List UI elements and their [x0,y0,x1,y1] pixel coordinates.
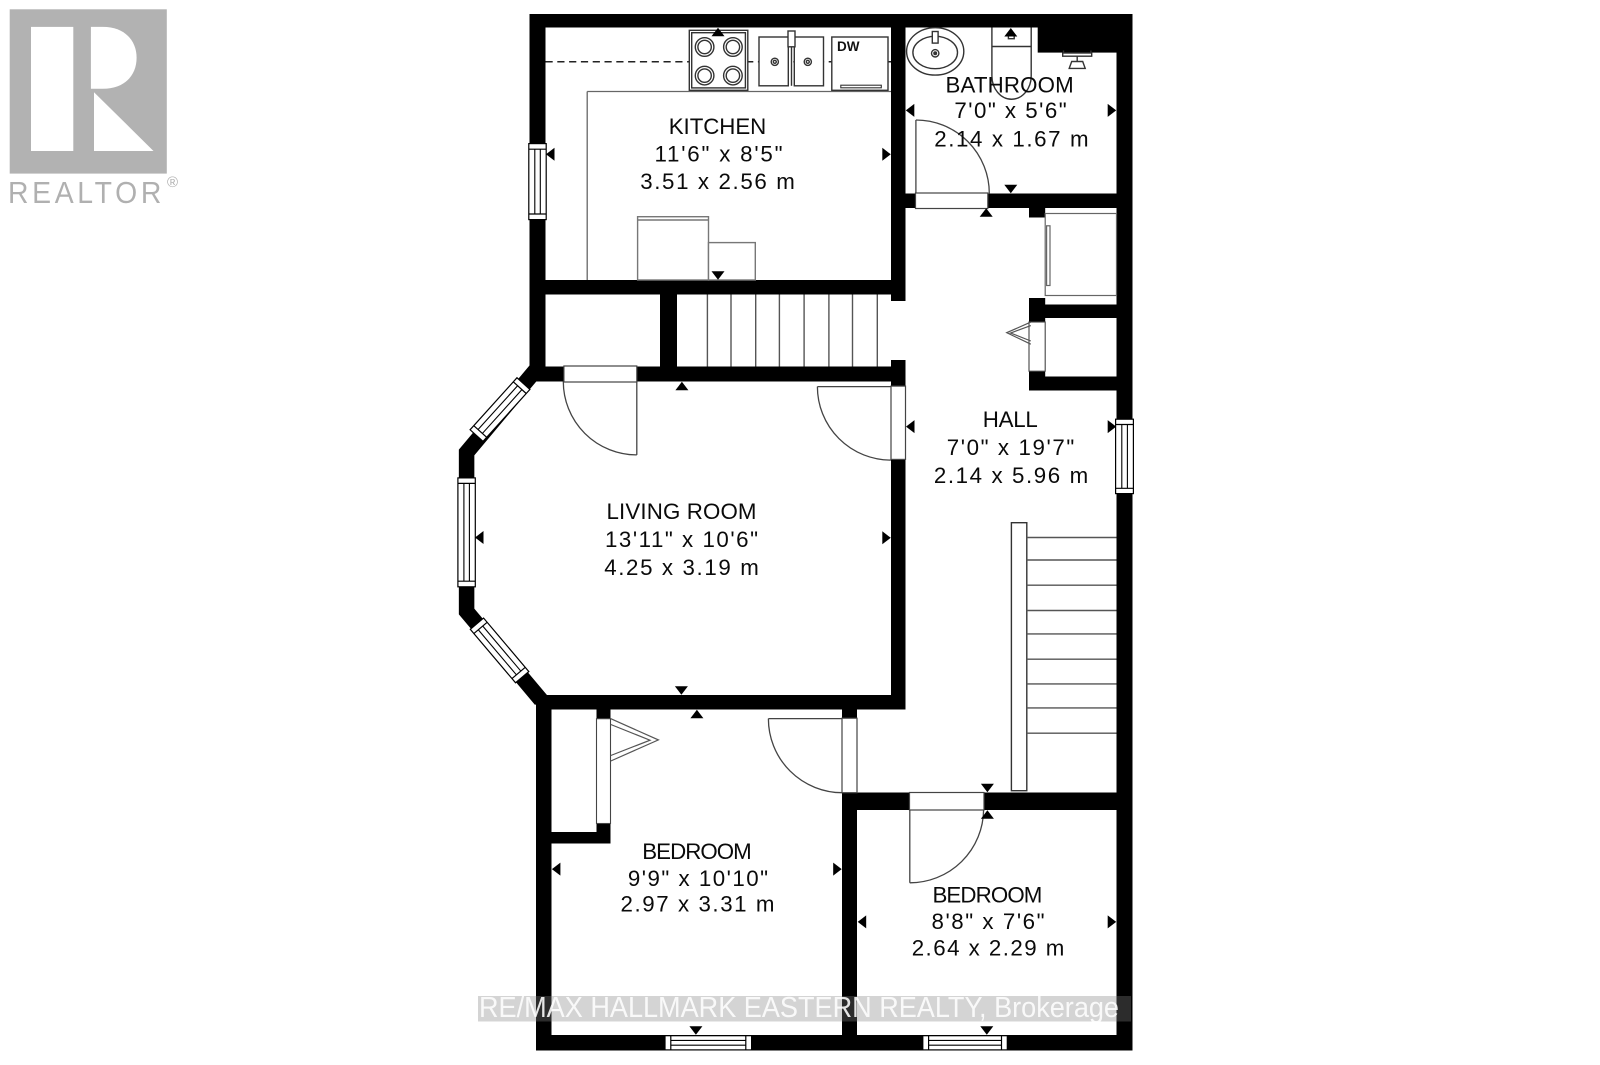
svg-text:BATHROOM: BATHROOM [945,72,1073,97]
svg-text:RE/MAX HALLMARK EASTERN REALTY: RE/MAX HALLMARK EASTERN REALTY, Brokerag… [479,992,1119,1024]
svg-text:®: ® [167,174,178,191]
svg-text:2.97 x 3.31 m: 2.97 x 3.31 m [621,892,775,917]
svg-text:9'9" x 10'10": 9'9" x 10'10" [628,866,768,891]
svg-text:7'0" x 19'7": 7'0" x 19'7" [947,435,1075,460]
svg-text:REALTOR: REALTOR [8,175,165,210]
svg-text:2.64 x 2.29 m: 2.64 x 2.29 m [912,936,1065,961]
svg-text:KITCHEN: KITCHEN [669,114,767,139]
svg-text:2.14 x 1.67 m: 2.14 x 1.67 m [934,126,1088,151]
svg-text:BEDROOM: BEDROOM [932,883,1042,908]
svg-text:7'0" x 5'6": 7'0" x 5'6" [954,98,1066,123]
svg-text:BEDROOM: BEDROOM [642,839,752,864]
svg-text:11'6" x 8'5": 11'6" x 8'5" [655,142,783,167]
svg-text:HALL: HALL [983,407,1038,432]
svg-text:DW: DW [837,39,860,54]
svg-text:2.14 x 5.96 m: 2.14 x 5.96 m [934,463,1088,488]
svg-text:LIVING ROOM: LIVING ROOM [607,499,757,524]
svg-text:8'8" x 7'6": 8'8" x 7'6" [932,909,1045,934]
